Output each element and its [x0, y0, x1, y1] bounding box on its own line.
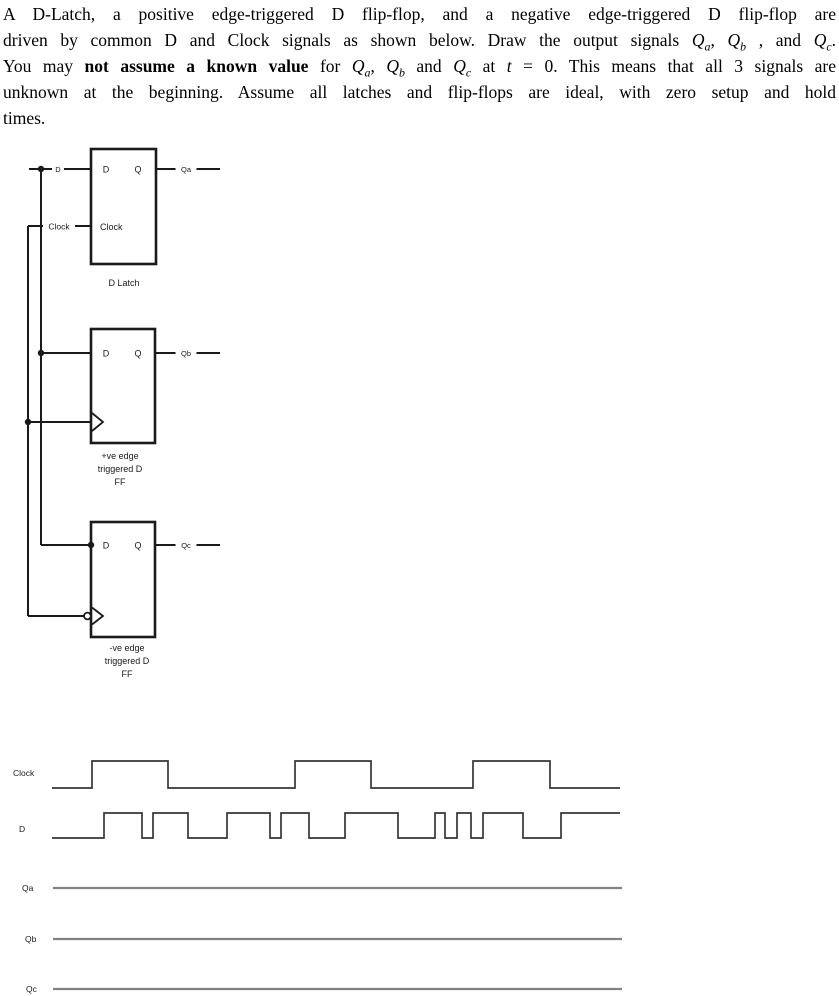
d-junction-dot — [38, 166, 44, 172]
inversion-bubble — [84, 613, 91, 620]
pos-edge-dff-pin-d-label: D — [103, 349, 110, 359]
d-latch-pin-d-label: D — [103, 165, 110, 175]
circuit-and-timing-diagram: DQClockClockDQaD LatchDQQb+ve edgetrigge… — [0, 0, 839, 996]
neg-edge-dff: DQQc-ve edgetriggered DFF — [28, 522, 220, 679]
neg-edge-dff-caption-line-3: FF — [122, 669, 133, 679]
pos-edge-dff-caption-line-2: triggered D — [98, 464, 143, 474]
d-signal-label: D — [19, 824, 25, 834]
d-latch: DQClockClockDQaD Latch — [28, 149, 220, 288]
d-latch-caption-line-1: D Latch — [108, 278, 139, 288]
d-latch-pin-q-label: Q — [134, 165, 141, 175]
pos-edge-dff-box — [91, 329, 155, 443]
pos-edge-dff-caption-line-1: +ve edge — [101, 451, 138, 461]
clock-row: Clock — [13, 761, 620, 788]
neg-edge-dff-caption-line-1: -ve edge — [109, 643, 144, 653]
neg-edge-dff-pin-d-label: D — [103, 541, 110, 551]
clock-junction-dot — [25, 419, 31, 425]
d-junction-dot — [38, 350, 44, 356]
qa-row: Qa — [22, 883, 622, 893]
qc-row: Qc — [26, 984, 622, 994]
d-latch-box — [91, 149, 156, 264]
neg-edge-dff-caption-line-2: triggered D — [105, 656, 150, 666]
qb-output-label: Qb — [181, 349, 191, 358]
d-junction-dot — [88, 542, 94, 548]
qc-output-label: Qc — [181, 541, 191, 550]
qb-row: Qb — [25, 934, 622, 944]
clock-waveform — [52, 761, 620, 788]
neg-edge-dff-pin-q-label: Q — [134, 541, 141, 551]
clock-wire-label: Clock — [48, 222, 70, 232]
worksheet-page: A D-Latch, a positive edge-triggered D f… — [0, 0, 839, 996]
qb-signal-label: Qb — [25, 934, 37, 944]
neg-edge-dff-box — [91, 522, 155, 637]
pos-edge-dff-caption-line-3: FF — [115, 477, 126, 487]
qc-signal-label: Qc — [26, 984, 38, 994]
pos-edge-dff: DQQb+ve edgetriggered DFF — [25, 329, 220, 487]
d-latch-pin-clock-label: Clock — [100, 222, 123, 232]
qa-output-label: Qa — [181, 165, 192, 174]
circuit-diagram: DQClockClockDQaD LatchDQQb+ve edgetrigge… — [25, 149, 220, 679]
qa-signal-label: Qa — [22, 883, 34, 893]
d-waveform — [52, 813, 620, 838]
d-row: D — [19, 813, 620, 838]
clock-signal-label: Clock — [13, 768, 35, 778]
d-wire-label: D — [55, 165, 61, 174]
pos-edge-dff-pin-q-label: Q — [134, 349, 141, 359]
timing-diagram: ClockDQaQbQc — [13, 761, 622, 994]
